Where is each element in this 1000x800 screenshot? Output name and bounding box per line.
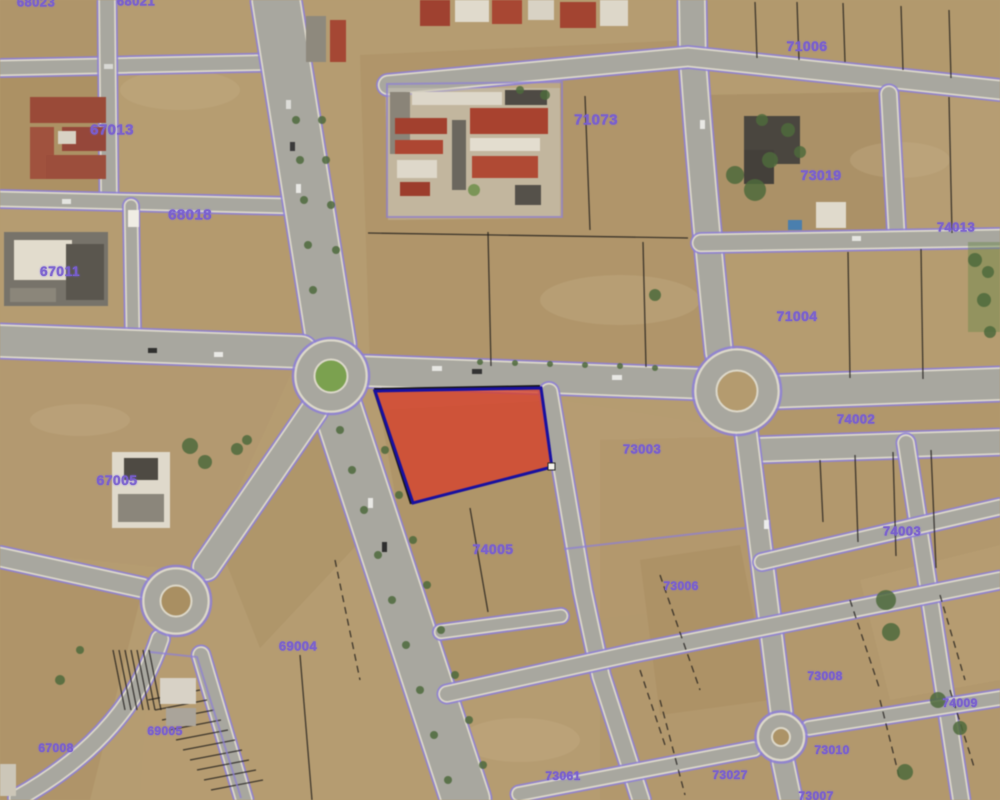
vertex-marker (548, 463, 555, 470)
map-viewport[interactable]: 6802368021670136801867011710737100673019… (0, 0, 1000, 800)
satellite-map[interactable] (0, 0, 1000, 800)
